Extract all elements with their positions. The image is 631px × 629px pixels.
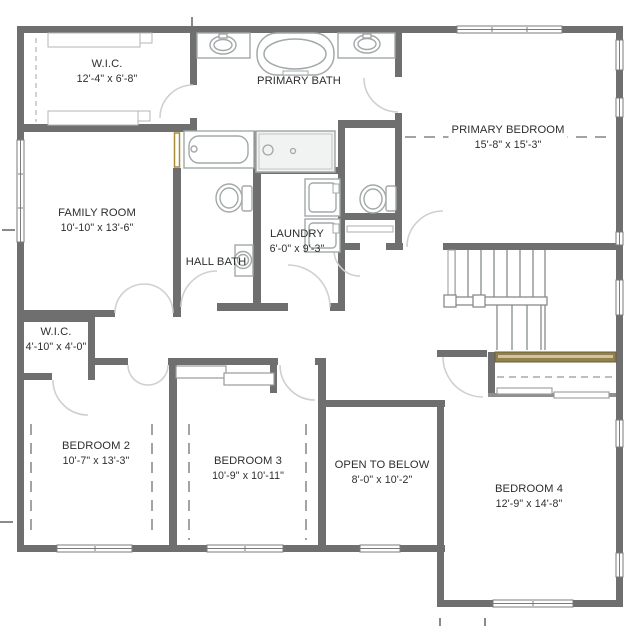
door-swing <box>160 85 193 118</box>
bedroom4-closet <box>488 352 616 398</box>
room-dimensions: 12'-4" x 6'-8" <box>77 72 138 87</box>
newel-post <box>473 295 485 307</box>
room-label-open-to-below: OPEN TO BELOW 8'-0" x 10'-2" <box>335 458 430 488</box>
room-label-family-room: FAMILY ROOM 10'-10" x 13'-6" <box>58 206 136 236</box>
room-dimensions: 12'-9" x 14'-8" <box>495 497 563 512</box>
room-name: BEDROOM 2 <box>62 439 130 454</box>
room-dimensions: 10'-9" x 10'-11" <box>212 469 284 484</box>
window <box>17 140 24 242</box>
room-name: W.I.C. <box>77 57 138 72</box>
linen-shelf <box>347 226 393 232</box>
door-swing <box>443 357 483 397</box>
door-swing <box>148 365 168 385</box>
room-label-primary-bath: PRIMARY BATH <box>257 74 341 89</box>
room-name: OPEN TO BELOW <box>335 458 430 473</box>
window <box>616 553 623 577</box>
window <box>493 600 573 607</box>
door-swing <box>181 271 217 307</box>
newel-post <box>444 295 456 307</box>
window <box>57 545 132 552</box>
floor-plan-drawing <box>0 0 631 629</box>
room-name: BEDROOM 3 <box>212 454 284 469</box>
door-swing <box>128 365 148 385</box>
room-dimensions: 6'-0" x 9'-3" <box>270 242 325 257</box>
door-swing <box>288 265 330 307</box>
door-swing <box>280 365 315 400</box>
door-swing <box>53 380 88 415</box>
room-name: FAMILY ROOM <box>58 206 136 221</box>
window <box>616 420 623 447</box>
door-swing <box>364 78 398 112</box>
room-label-bedroom-2: BEDROOM 2 10'-7" x 13'-3" <box>62 439 130 469</box>
room-label-bedroom-4: BEDROOM 4 12'-9" x 14'-8" <box>495 482 563 512</box>
room-dimensions: 15'-8" x 15'-3" <box>452 138 565 153</box>
washer-icon <box>305 179 340 216</box>
vanity-sink-icon <box>338 33 395 58</box>
window <box>616 40 623 70</box>
window <box>457 26 562 33</box>
toilet-icon <box>216 184 252 212</box>
room-label-bedroom-3: BEDROOM 3 10'-9" x 10'-11" <box>212 454 284 484</box>
room-name: W.I.C. <box>26 325 87 340</box>
room-label-wic-2: W.I.C. 4'-10" x 4'-0" <box>26 325 87 355</box>
room-label-laundry: LAUNDRY 6'-0" x 9'-3" <box>270 227 325 257</box>
door-swing <box>334 250 360 276</box>
door-swing <box>115 284 144 313</box>
room-dimensions: 10'-7" x 13'-3" <box>62 454 130 469</box>
freestanding-tub-icon <box>257 33 334 75</box>
room-label-primary-bedroom: PRIMARY BEDROOM 15'-8" x 15'-3" <box>449 123 568 153</box>
stair-handrail <box>447 297 547 305</box>
window <box>360 545 400 552</box>
floor-plan: W.I.C. 12'-4" x 6'-8" PRIMARY BATH PRIMA… <box>0 0 631 629</box>
room-dimensions: 8'-0" x 10'-2" <box>335 473 430 488</box>
room-name: PRIMARY BEDROOM <box>452 123 565 138</box>
room-label-hall-bath: HALL BATH <box>186 255 247 270</box>
room-dimensions: 4'-10" x 4'-0" <box>26 340 87 355</box>
room-name: PRIMARY BATH <box>257 74 341 89</box>
window <box>616 280 623 315</box>
room-label-wic-primary: W.I.C. 12'-4" x 6'-8" <box>77 57 138 87</box>
window <box>616 98 623 117</box>
room-name: HALL BATH <box>186 255 247 270</box>
bedroom3-closet-doors <box>176 366 274 385</box>
room-name: BEDROOM 4 <box>495 482 563 497</box>
window <box>616 232 623 245</box>
vanity-sink-icon <box>197 33 250 58</box>
bathtub-icon <box>184 131 254 168</box>
shower-icon <box>256 131 335 172</box>
toilet-icon <box>360 185 396 213</box>
door-swing <box>407 211 443 247</box>
room-dimensions: 10'-10" x 13'-6" <box>58 221 136 236</box>
door-swing <box>144 284 173 313</box>
window <box>207 545 283 552</box>
stairs <box>444 250 547 350</box>
room-name: LAUNDRY <box>270 227 325 242</box>
pocket-door <box>173 132 181 168</box>
